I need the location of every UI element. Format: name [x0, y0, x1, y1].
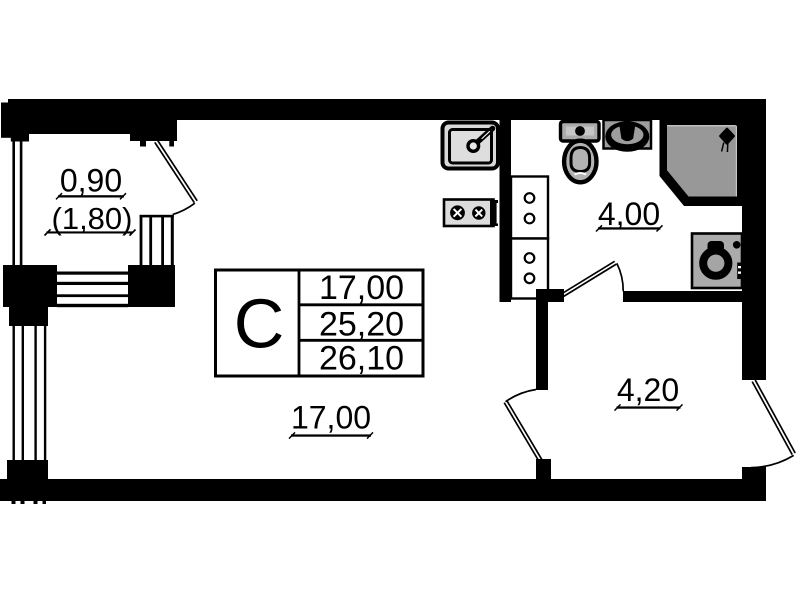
svg-text:0,90: 0,90	[60, 163, 122, 199]
svg-text:4,00: 4,00	[598, 196, 660, 232]
svg-text:С: С	[234, 285, 285, 363]
svg-text:26,10: 26,10	[319, 340, 404, 378]
svg-text:17,00: 17,00	[319, 269, 404, 307]
svg-text:17,00: 17,00	[291, 400, 371, 436]
svg-text:4,20: 4,20	[617, 372, 679, 408]
svg-text:25,20: 25,20	[319, 306, 404, 344]
svg-text:(1,80): (1,80)	[52, 201, 133, 236]
